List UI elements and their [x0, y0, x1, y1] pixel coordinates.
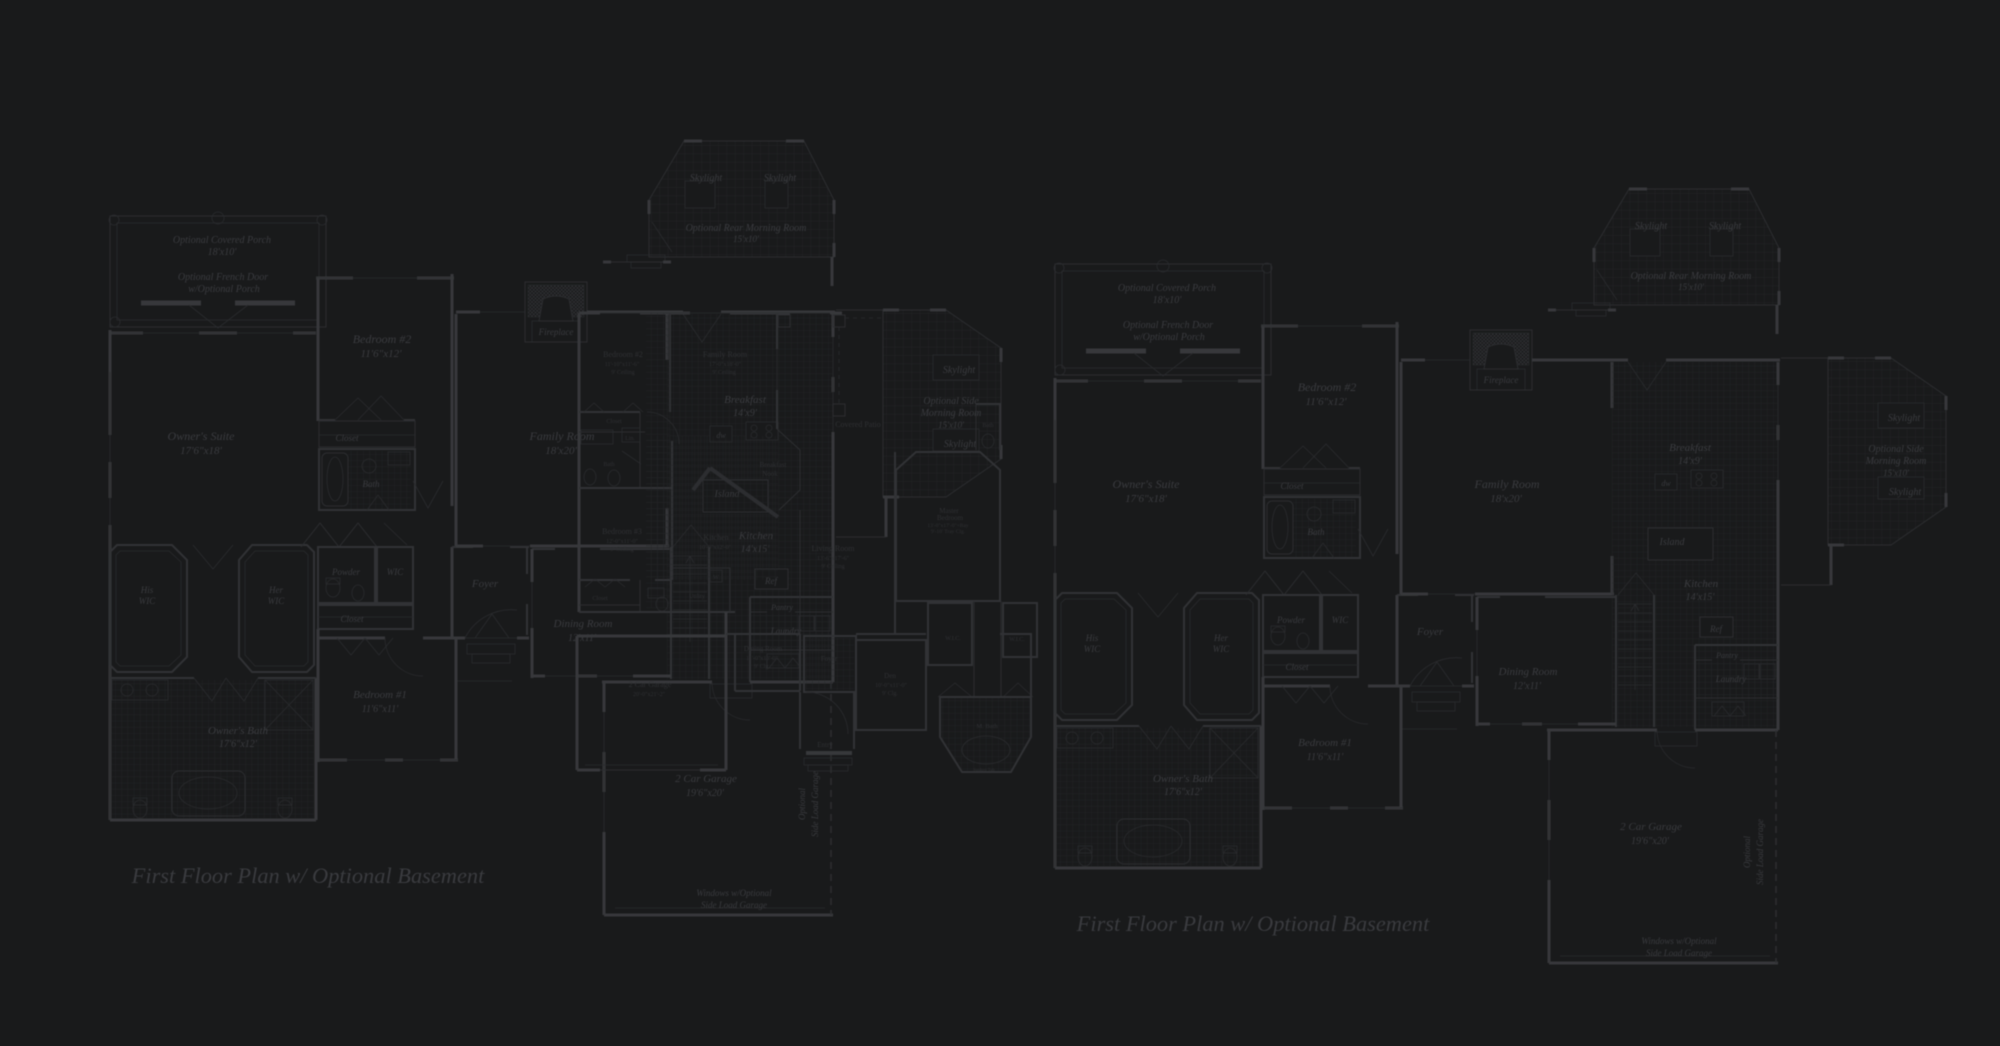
svg-text:11'-0"x13'-0": 11'-0"x13'-0"	[746, 656, 778, 662]
svg-text:2 Car Garage: 2 Car Garage	[629, 680, 672, 689]
svg-text:10'-0"x11'-0": 10'-0"x11'-0"	[875, 683, 907, 689]
svg-text:Bedroom #2: Bedroom #2	[603, 350, 643, 359]
svg-text:17'-0"x18'-0": 17'-0"x18'-0"	[709, 362, 742, 368]
svg-text:Utility: Utility	[689, 594, 705, 600]
svg-text:Breakfast: Breakfast	[760, 461, 787, 469]
svg-text:Nook: Nook	[762, 470, 778, 478]
svg-text:9'-10' Tray Clg.: 9'-10' Tray Clg.	[931, 529, 966, 535]
svg-text:9' Ceiling: 9' Ceiling	[611, 370, 634, 376]
svg-text:Dining Room: Dining Room	[744, 645, 783, 653]
svg-text:9' Clg.: 9' Clg.	[882, 691, 898, 697]
svg-text:Kitchen: Kitchen	[703, 533, 728, 542]
svg-text:Entry: Entry	[817, 741, 833, 749]
svg-text:Closet: Closet	[606, 419, 622, 425]
svg-text:Bedroom #3: Bedroom #3	[602, 527, 642, 536]
svg-text:9' Ceiling: 9' Ceiling	[610, 547, 633, 553]
svg-text:Bath: Bath	[603, 462, 614, 468]
svg-text:Bath: Bath	[982, 423, 993, 429]
svg-text:Foyer: Foyer	[821, 655, 838, 663]
svg-text:Sunken Tub: Sunken Tub	[973, 767, 995, 772]
svg-text:10'-0"x12'-0": 10'-0"x12'-0"	[699, 545, 732, 551]
svg-text:Covered Patio: Covered Patio	[835, 420, 881, 429]
svg-text:Lin.: Lin.	[625, 436, 635, 442]
svg-text:9' Ceiling: 9' Ceiling	[712, 370, 735, 376]
svg-text:12'-0"x11'-0": 12'-0"x11'-0"	[606, 539, 638, 545]
svg-text:Bedroom: Bedroom	[937, 514, 964, 522]
svg-text:W.I.C.: W.I.C.	[945, 636, 961, 642]
svg-text:Family Room: Family Room	[703, 350, 748, 359]
svg-text:Den: Den	[884, 672, 896, 680]
svg-text:M. Bath: M. Bath	[976, 723, 998, 730]
svg-text:9' Clg.: 9' Clg.	[754, 664, 770, 670]
svg-text:W.I.C.: W.I.C.	[1009, 637, 1025, 643]
svg-text:11'-10"x11'-6": 11'-10"x11'-6"	[605, 362, 640, 368]
svg-text:13'-6"x17'-6": 13'-6"x17'-6"	[817, 556, 850, 562]
svg-text:Living Room: Living Room	[812, 544, 856, 553]
svg-text:Closet: Closet	[592, 596, 608, 602]
svg-text:9' Ceiling: 9' Ceiling	[821, 564, 844, 570]
svg-text:20'-0"x21'-2": 20'-0"x21'-2"	[633, 692, 666, 698]
